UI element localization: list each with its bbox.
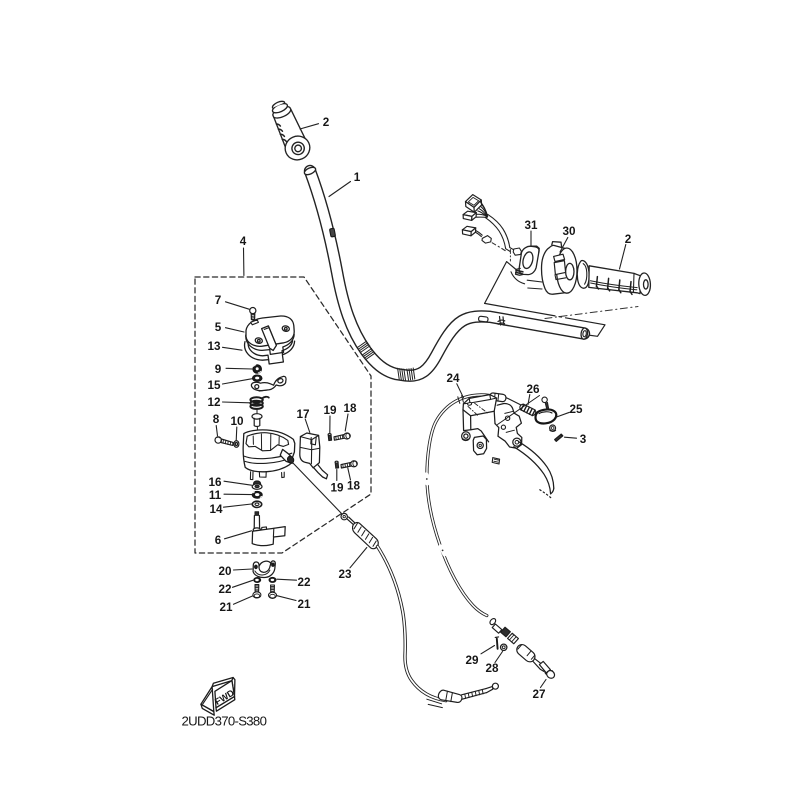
svg-text:6: 6 bbox=[215, 534, 222, 547]
svg-text:26: 26 bbox=[526, 383, 540, 396]
svg-text:27: 27 bbox=[532, 688, 545, 701]
svg-text:16: 16 bbox=[208, 476, 222, 489]
svg-text:1: 1 bbox=[354, 171, 361, 184]
svg-text:18: 18 bbox=[347, 480, 361, 493]
svg-text:14: 14 bbox=[209, 503, 223, 516]
svg-text:18: 18 bbox=[343, 402, 357, 415]
svg-text:9: 9 bbox=[215, 363, 222, 376]
svg-text:29: 29 bbox=[465, 654, 479, 667]
svg-text:15: 15 bbox=[207, 379, 221, 392]
svg-text:10: 10 bbox=[230, 415, 244, 428]
svg-text:25: 25 bbox=[569, 403, 583, 416]
svg-text:21: 21 bbox=[219, 601, 233, 614]
svg-text:28: 28 bbox=[485, 662, 499, 675]
svg-text:19: 19 bbox=[323, 404, 337, 417]
svg-text:19: 19 bbox=[330, 482, 344, 495]
svg-text:7: 7 bbox=[215, 294, 222, 307]
svg-text:30: 30 bbox=[562, 225, 576, 238]
svg-text:5: 5 bbox=[215, 321, 222, 334]
svg-text:4: 4 bbox=[240, 235, 247, 248]
svg-text:12: 12 bbox=[207, 396, 221, 409]
svg-text:3: 3 bbox=[580, 433, 587, 446]
svg-text:23: 23 bbox=[338, 568, 352, 581]
svg-text:2: 2 bbox=[323, 116, 330, 129]
svg-text:13: 13 bbox=[207, 340, 221, 353]
svg-text:2: 2 bbox=[625, 233, 632, 246]
svg-text:2UDD370-S380: 2UDD370-S380 bbox=[182, 713, 267, 728]
svg-text:24: 24 bbox=[446, 372, 460, 385]
svg-text:17: 17 bbox=[296, 408, 309, 421]
svg-text:22: 22 bbox=[218, 583, 232, 596]
svg-text:21: 21 bbox=[297, 598, 311, 611]
svg-text:22: 22 bbox=[297, 576, 311, 589]
svg-text:11: 11 bbox=[209, 489, 222, 502]
svg-text:20: 20 bbox=[218, 565, 232, 578]
svg-text:8: 8 bbox=[213, 413, 220, 426]
svg-text:31: 31 bbox=[524, 219, 538, 232]
